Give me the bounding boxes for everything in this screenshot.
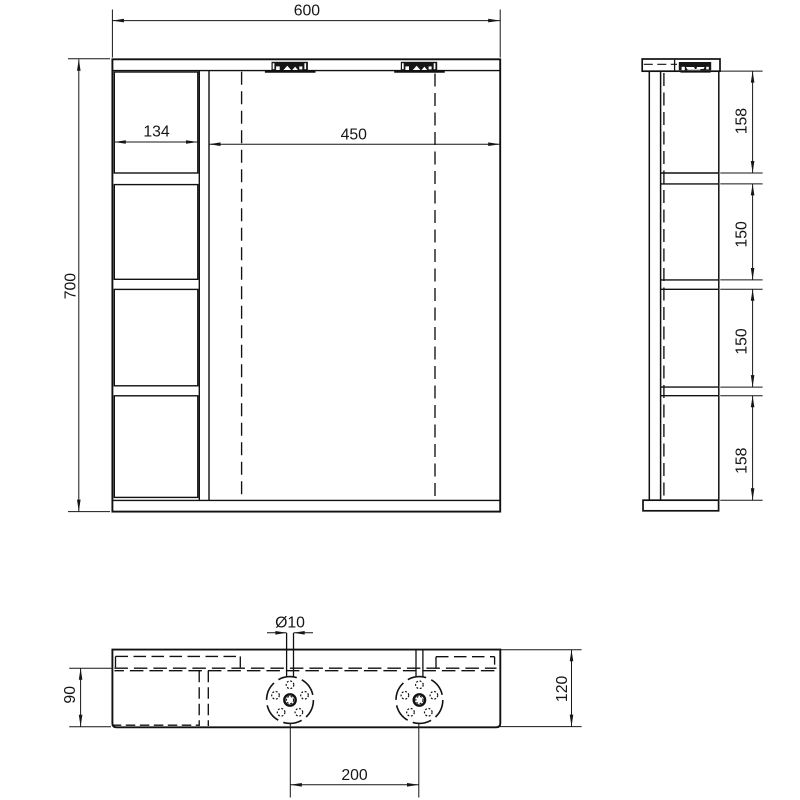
svg-text:150: 150 — [734, 328, 751, 355]
svg-text:134: 134 — [143, 124, 170, 141]
svg-text:90: 90 — [62, 686, 79, 704]
svg-text:200: 200 — [341, 767, 368, 784]
svg-text:700: 700 — [62, 273, 79, 300]
svg-text:450: 450 — [341, 127, 368, 144]
svg-text:600: 600 — [294, 3, 321, 20]
svg-text:150: 150 — [734, 221, 751, 248]
svg-text:158: 158 — [734, 108, 751, 135]
svg-text:120: 120 — [554, 676, 571, 703]
svg-text:Ø10: Ø10 — [275, 615, 305, 632]
svg-text:158: 158 — [734, 447, 751, 474]
